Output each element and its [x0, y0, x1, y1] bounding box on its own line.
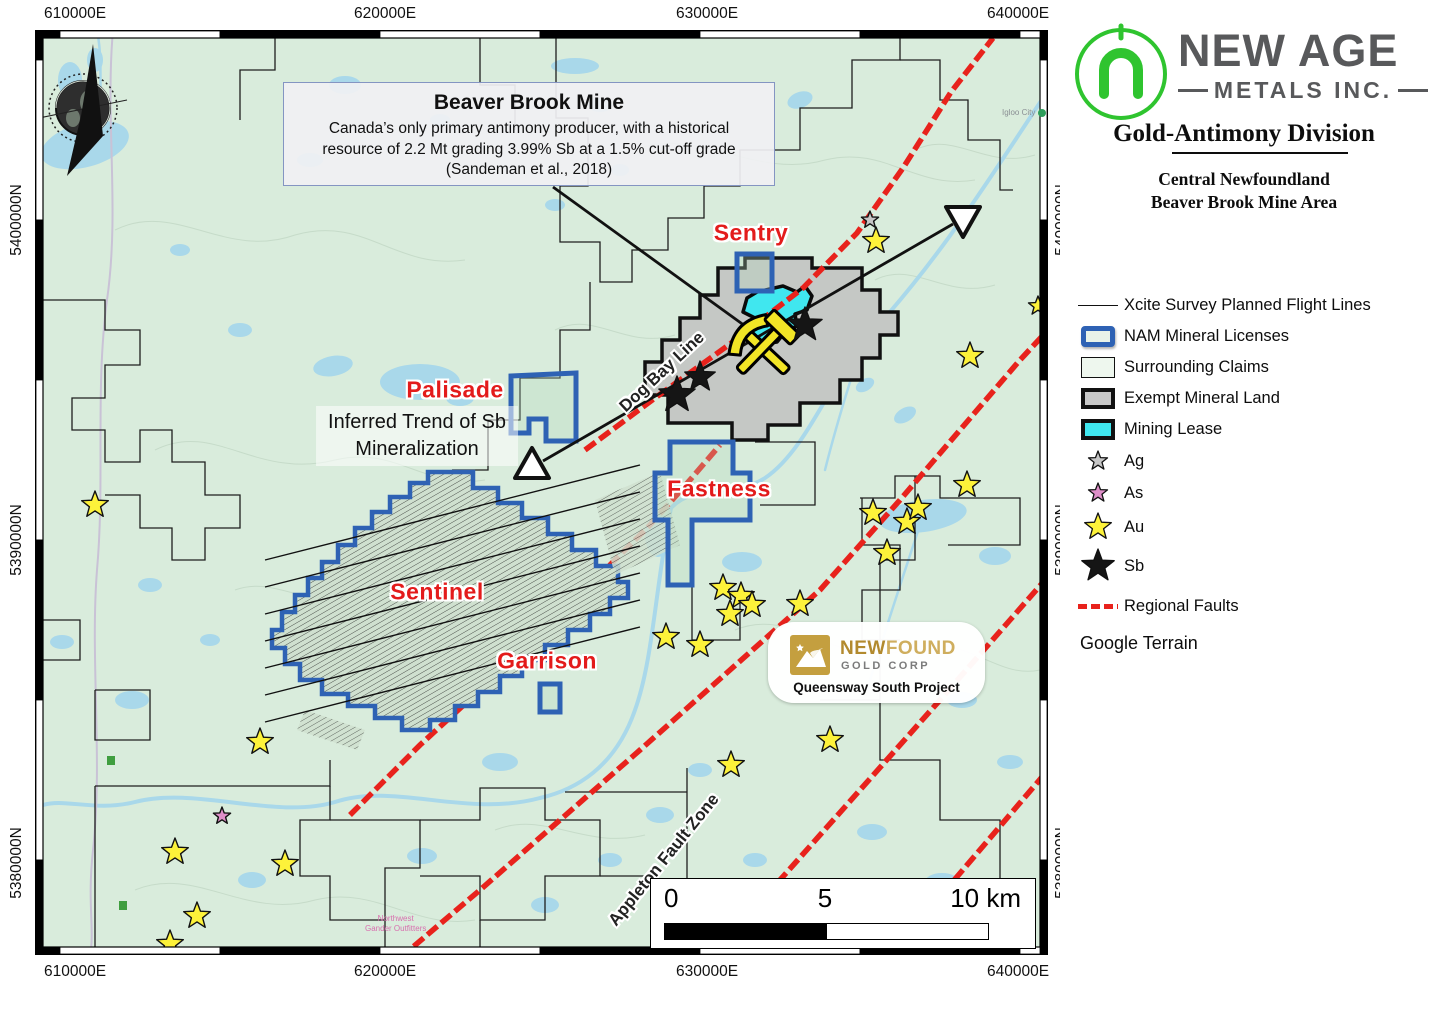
mining-lease-swatch-icon [1081, 419, 1115, 440]
company-brand: NEW AGE METALS INC. [1068, 22, 1424, 122]
newfound-gold-name: NEWFOUND [840, 638, 956, 660]
lake [646, 807, 674, 823]
lake [997, 755, 1023, 769]
brand-text: NEW AGE METALS INC. [1178, 28, 1428, 104]
newfound-gold-logo-icon [790, 635, 830, 675]
lake [238, 872, 266, 888]
axis-left-5390000N: 5390000N [8, 504, 26, 576]
axis-top-620000E: 620000E [354, 5, 416, 23]
legend-item-surrounding-claims: Surrounding Claims [1076, 352, 1426, 383]
axis-bottom-630000E: 630000E [676, 963, 738, 981]
as-star-icon [1085, 480, 1111, 506]
brand-name: NEW AGE [1178, 28, 1428, 73]
garrison-label: Garrison [497, 648, 597, 675]
basemap-label: Google Terrain [1076, 633, 1198, 654]
flight-line-swatch-icon [1078, 305, 1118, 306]
legend-item-flight-lines: Xcite Survey Planned Flight Lines [1076, 290, 1426, 321]
axis-bottom-620000E: 620000E [354, 963, 416, 981]
legend-item-as: As [1076, 477, 1426, 509]
legend-item-mining-lease: Mining Lease [1076, 414, 1426, 445]
area-subtitle: Central Newfoundland Beaver Brook Mine A… [1064, 168, 1424, 214]
axis-left-5380000N: 5380000N [8, 827, 26, 899]
palisade-label: Palisade [406, 377, 503, 404]
sentry-license [737, 254, 772, 291]
lake [545, 199, 565, 211]
axis-top-640000E: 640000E [987, 5, 1049, 23]
callout-title: Beaver Brook Mine [284, 91, 774, 115]
newfound-project-label: Queensway South Project [768, 680, 985, 695]
lake [722, 552, 762, 572]
division-title: Gold-Antimony Division [1064, 120, 1424, 148]
callout-body: Canada’s only primary antimony producer,… [298, 119, 760, 181]
newfound-gold-badge: NEWFOUND GOLD CORP Queensway South Proje… [768, 622, 985, 703]
palisade-license [511, 373, 576, 441]
sb-star-icon [1078, 546, 1118, 586]
lake [979, 547, 1011, 565]
au-star-icon [1081, 510, 1115, 544]
highway-shield-icon [107, 756, 115, 765]
lake [50, 635, 74, 649]
poi-icon [1038, 109, 1046, 117]
fault-swatch-icon [1078, 604, 1118, 609]
new-age-metals-logo-icon [1068, 22, 1168, 122]
newfound-gold-subtitle: GOLD CORP [841, 660, 930, 672]
highway-shield-icon [119, 901, 127, 910]
axis-top-630000E: 630000E [676, 5, 738, 23]
info-panel: NEW AGE METALS INC. Gold-Antimony Divisi… [1060, 0, 1429, 1010]
axis-left-5400000N: 5400000N [8, 184, 26, 256]
lake [200, 634, 220, 646]
legend-item-au: Au [1076, 509, 1426, 545]
lake [743, 853, 767, 867]
legend-basemap: Google Terrain [1076, 625, 1426, 661]
fastness-label: Fastness [667, 476, 771, 503]
nam-license-swatch-icon [1081, 326, 1115, 347]
lake [857, 824, 887, 840]
lake [115, 691, 149, 709]
legend-item-nam-licenses: NAM Mineral Licenses [1076, 321, 1426, 352]
lake [170, 244, 190, 256]
surrounding-claims-swatch-icon [1081, 357, 1115, 378]
lake [482, 753, 518, 771]
lake [407, 848, 437, 864]
lake [598, 853, 622, 867]
figure-root: Beaver Brook Mine Canada’s only primary … [0, 0, 1429, 1010]
scale-bar: 0 5 10 km [650, 878, 1036, 949]
scale-5: 5 [818, 883, 832, 914]
lake [138, 578, 162, 592]
igloo-city-label: Igloo City [1002, 108, 1046, 117]
axis-bottom-640000E: 640000E [987, 963, 1049, 981]
division-underline [1172, 152, 1348, 154]
rule-left [1178, 89, 1208, 92]
ag-star-icon [1085, 448, 1111, 474]
sentry-label: Sentry [714, 220, 789, 247]
legend-item-sb: Sb [1076, 545, 1426, 587]
axis-bottom-610000E: 610000E [44, 963, 106, 981]
brand-subname: METALS INC. [1178, 77, 1428, 104]
lake [228, 323, 252, 337]
outfitters-label: Northwest Gander Outfitters [365, 914, 426, 933]
rule-right [1398, 89, 1428, 92]
scale-bar-graphic [664, 923, 989, 940]
lake [688, 763, 712, 777]
beaver-brook-callout: Beaver Brook Mine Canada’s only primary … [283, 82, 775, 186]
legend-item-exempt-land: Exempt Mineral Land [1076, 383, 1426, 414]
scale-10km: 10 km [950, 883, 1021, 914]
map-area: Beaver Brook Mine Canada’s only primary … [35, 30, 1048, 955]
scale-0: 0 [664, 883, 678, 914]
legend: Xcite Survey Planned Flight Lines NAM Mi… [1076, 290, 1426, 661]
axis-top-610000E: 610000E [44, 5, 106, 23]
legend-item-ag: Ag [1076, 445, 1426, 477]
sentinel-label: Sentinel [390, 579, 483, 606]
legend-item-regional-faults: Regional Faults [1076, 587, 1426, 625]
garrison-license [540, 684, 560, 712]
exempt-land-swatch-icon [1081, 388, 1115, 409]
lake [551, 58, 599, 74]
inferred-trend-label: Inferred Trend of Sb Mineralization [316, 406, 518, 466]
